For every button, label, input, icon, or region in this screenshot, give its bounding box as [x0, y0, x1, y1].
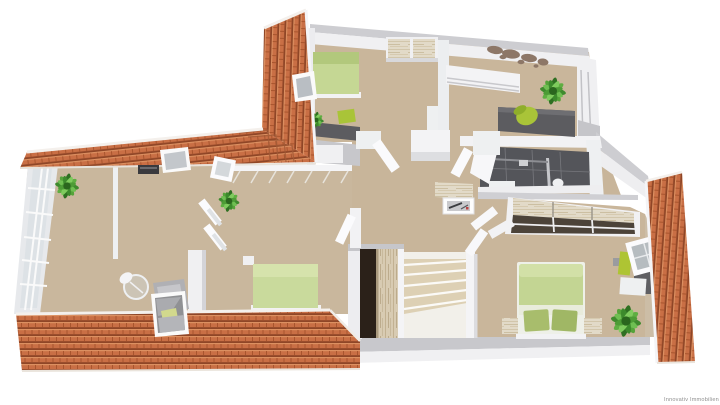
- svg-text:Innovativ Immobilien: Innovativ Immobilien: [664, 397, 719, 403]
